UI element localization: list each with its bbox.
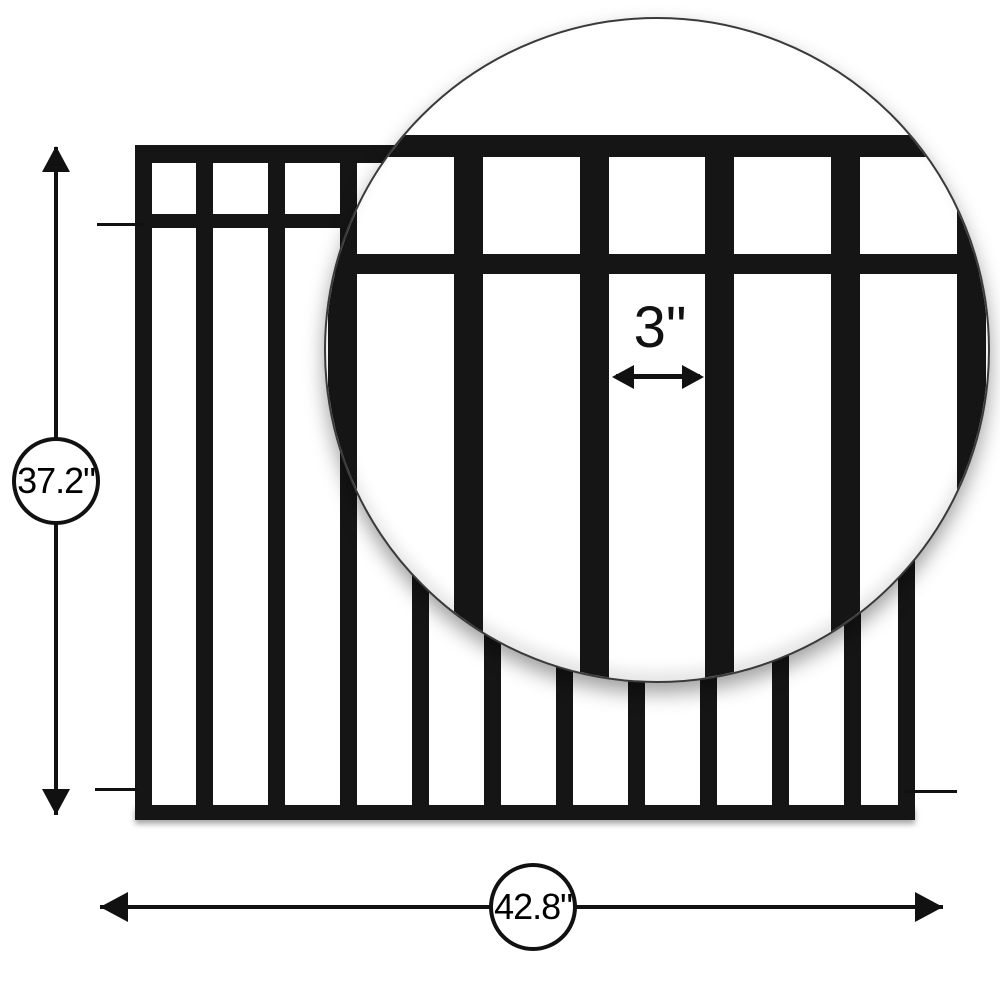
fence-rail [135,805,915,820]
width-value-label: 42.8" [494,886,572,928]
picket-spacing-label: 3" [634,299,687,357]
magnified-fence-upright [831,135,860,681]
magnified-fence-upright [580,135,609,681]
width-arrow-left-icon [100,892,128,922]
magnified-fence-upright [454,135,483,681]
picket-spacing-arrow-right-icon [682,365,704,389]
magnified-fence-rail [326,135,988,157]
height-value-badge: 37.2" [12,437,100,525]
extension-line-bottom-right [903,790,957,793]
magnified-fence-upright [328,135,357,681]
height-value-label: 37.2" [17,460,95,502]
extension-line-top-left [97,223,143,226]
width-value-badge: 42.8" [489,863,577,951]
picket-spacing-arrow-left-icon [612,365,634,389]
fence-upright [268,145,285,820]
magnified-fence-upright [957,135,986,681]
magnifier-circle: 3" [324,17,990,683]
diagram-canvas: 37.2" 42.8" 3" [0,0,1000,1000]
width-arrow-right-icon [915,892,943,922]
fence-upright [196,145,213,820]
magnified-fence-upright [705,135,734,681]
fence-upright [135,145,152,820]
height-arrow-up-icon [42,146,70,172]
magnified-fence-rail [326,254,988,274]
height-arrow-down-icon [42,789,70,815]
extension-line-bottom-left [95,788,138,791]
